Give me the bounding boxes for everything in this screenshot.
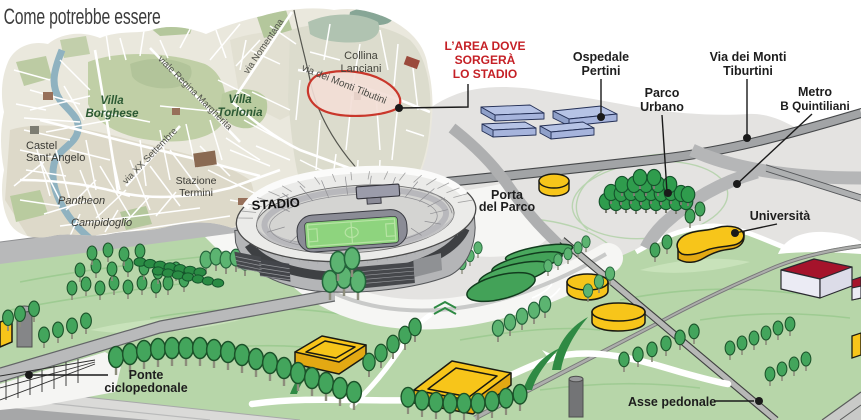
svg-text:Urbano: Urbano <box>640 100 684 114</box>
svg-text:Villa: Villa <box>100 95 124 107</box>
svg-text:del Parco: del Parco <box>479 200 536 214</box>
svg-text:Sant’Angelo: Sant’Angelo <box>26 152 85 164</box>
svg-text:Ponte: Ponte <box>129 368 164 382</box>
svg-text:SORGERÀ: SORGERÀ <box>455 52 516 67</box>
svg-text:Stazione: Stazione <box>176 175 217 187</box>
svg-text:Campidoglio: Campidoglio <box>71 217 132 229</box>
svg-text:Castel: Castel <box>26 140 57 152</box>
svg-text:LO STADIO: LO STADIO <box>453 67 517 81</box>
svg-text:Tiburtini: Tiburtini <box>723 64 773 78</box>
svg-text:ciclopedonale: ciclopedonale <box>104 381 187 395</box>
svg-text:L’AREA DOVE: L’AREA DOVE <box>445 39 526 53</box>
svg-text:Pertini: Pertini <box>582 64 621 78</box>
svg-text:Pantheon: Pantheon <box>58 195 105 207</box>
svg-text:Ospedale: Ospedale <box>573 50 629 64</box>
svg-text:Lanciani: Lanciani <box>341 63 382 75</box>
svg-text:Collina: Collina <box>344 50 379 62</box>
svg-text:Come potrebbe essere: Come potrebbe essere <box>4 6 161 30</box>
svg-text:Termini: Termini <box>179 187 213 199</box>
svg-text:Parco: Parco <box>645 86 680 100</box>
svg-text:Via dei Monti: Via dei Monti <box>710 50 787 64</box>
svg-text:Borghese: Borghese <box>85 108 139 120</box>
svg-text:Villa: Villa <box>228 94 252 106</box>
svg-text:B Quintiliani: B Quintiliani <box>780 99 849 113</box>
svg-text:Metro: Metro <box>798 85 832 99</box>
svg-text:Università: Università <box>750 209 810 223</box>
svg-text:Asse pedonale: Asse pedonale <box>628 395 716 409</box>
